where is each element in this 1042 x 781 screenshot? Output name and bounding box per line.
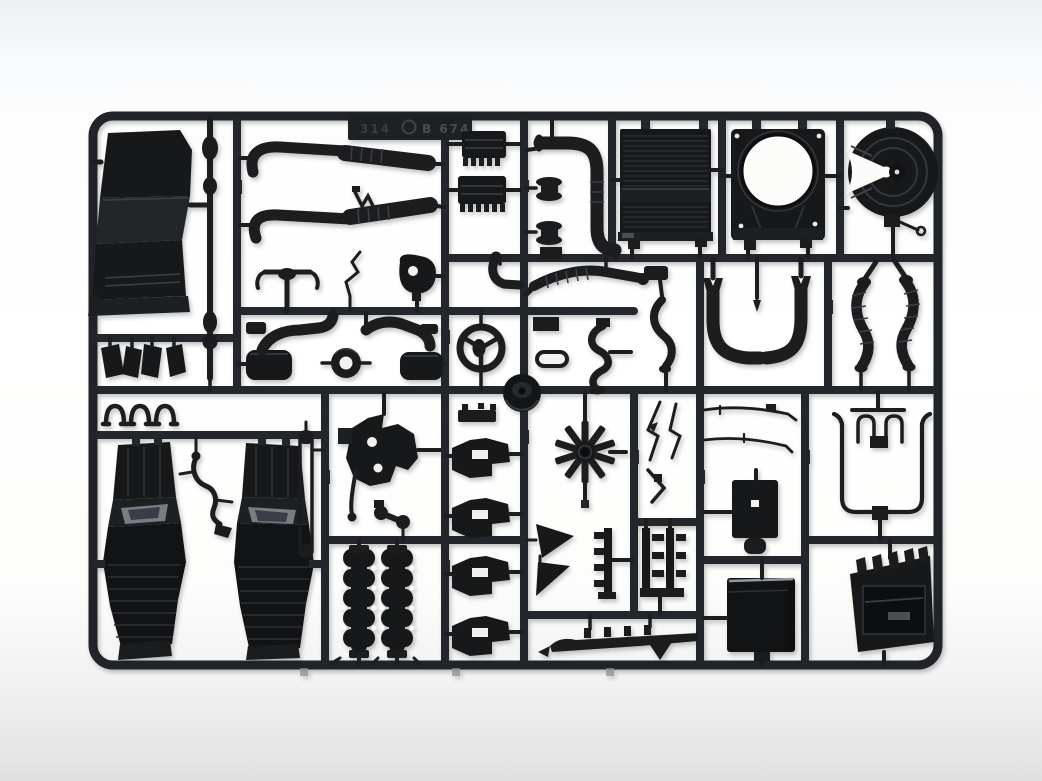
- part-intake-u-pipes: [703, 258, 811, 358]
- part-drive-shaft: [202, 118, 218, 390]
- part-fan-shroud: [722, 120, 840, 257]
- photo-stage: 314 B 674: [0, 0, 1042, 781]
- part-sealing-ring: [322, 348, 370, 378]
- part-fifth-wheel-coupling: [840, 120, 938, 256]
- part-pipe-bracket: [180, 437, 232, 538]
- part-belt-pulleys: [526, 177, 562, 245]
- sprue-id-tag: 314 B 674: [348, 114, 472, 140]
- part-cooling-fan: [554, 392, 626, 508]
- part-air-filter-lower: [447, 176, 520, 212]
- part-cab-step-panel: [850, 540, 934, 664]
- part-ball-linkage: [374, 500, 410, 540]
- part-engine-block-left-half: [95, 435, 186, 660]
- part-muffler-left: [238, 311, 333, 380]
- part-mudguard-bracket: [589, 318, 631, 395]
- sprue: 314 B 674: [88, 114, 938, 676]
- part-water-pump: [399, 254, 443, 311]
- part-battery-box: [704, 560, 795, 665]
- part-steering-wheel: [460, 311, 502, 390]
- part-muffler-right: [366, 313, 445, 380]
- part-cab-floor-console: [88, 130, 207, 316]
- part-shift-linkage: [346, 186, 374, 311]
- part-exhaust-manifolds: [330, 540, 420, 664]
- part-exhaust-pipe-upper: [240, 146, 443, 172]
- part-flex-exhaust-section: [526, 247, 649, 366]
- part-corrugated-hoses-pair: [852, 260, 920, 390]
- part-relay-box: [704, 470, 778, 554]
- part-bracket-blades: [527, 524, 574, 596]
- part-radiator: [612, 120, 722, 257]
- tag-left-text: 314: [360, 122, 391, 136]
- part-visor-wedges: [101, 338, 186, 378]
- part-exhaust-pipe-lower: [240, 205, 443, 238]
- part-air-line-tubing: [834, 392, 930, 540]
- part-thin-control-rods: [704, 404, 796, 452]
- sprue-photo: 314 B 674: [0, 0, 1042, 781]
- part-air-cleaner-cover: [503, 374, 541, 412]
- part-spring-clips: [103, 406, 177, 424]
- part-engine-mount-brackets: [446, 403, 522, 656]
- part-chassis-member-bar: [538, 615, 698, 660]
- part-tow-bracket: [257, 268, 317, 311]
- part-gearbox: [338, 394, 440, 522]
- part-wiper-levers: [648, 402, 680, 502]
- part-leaf-spring-combs: [594, 520, 686, 614]
- part-corrugated-hose-small: [644, 266, 672, 390]
